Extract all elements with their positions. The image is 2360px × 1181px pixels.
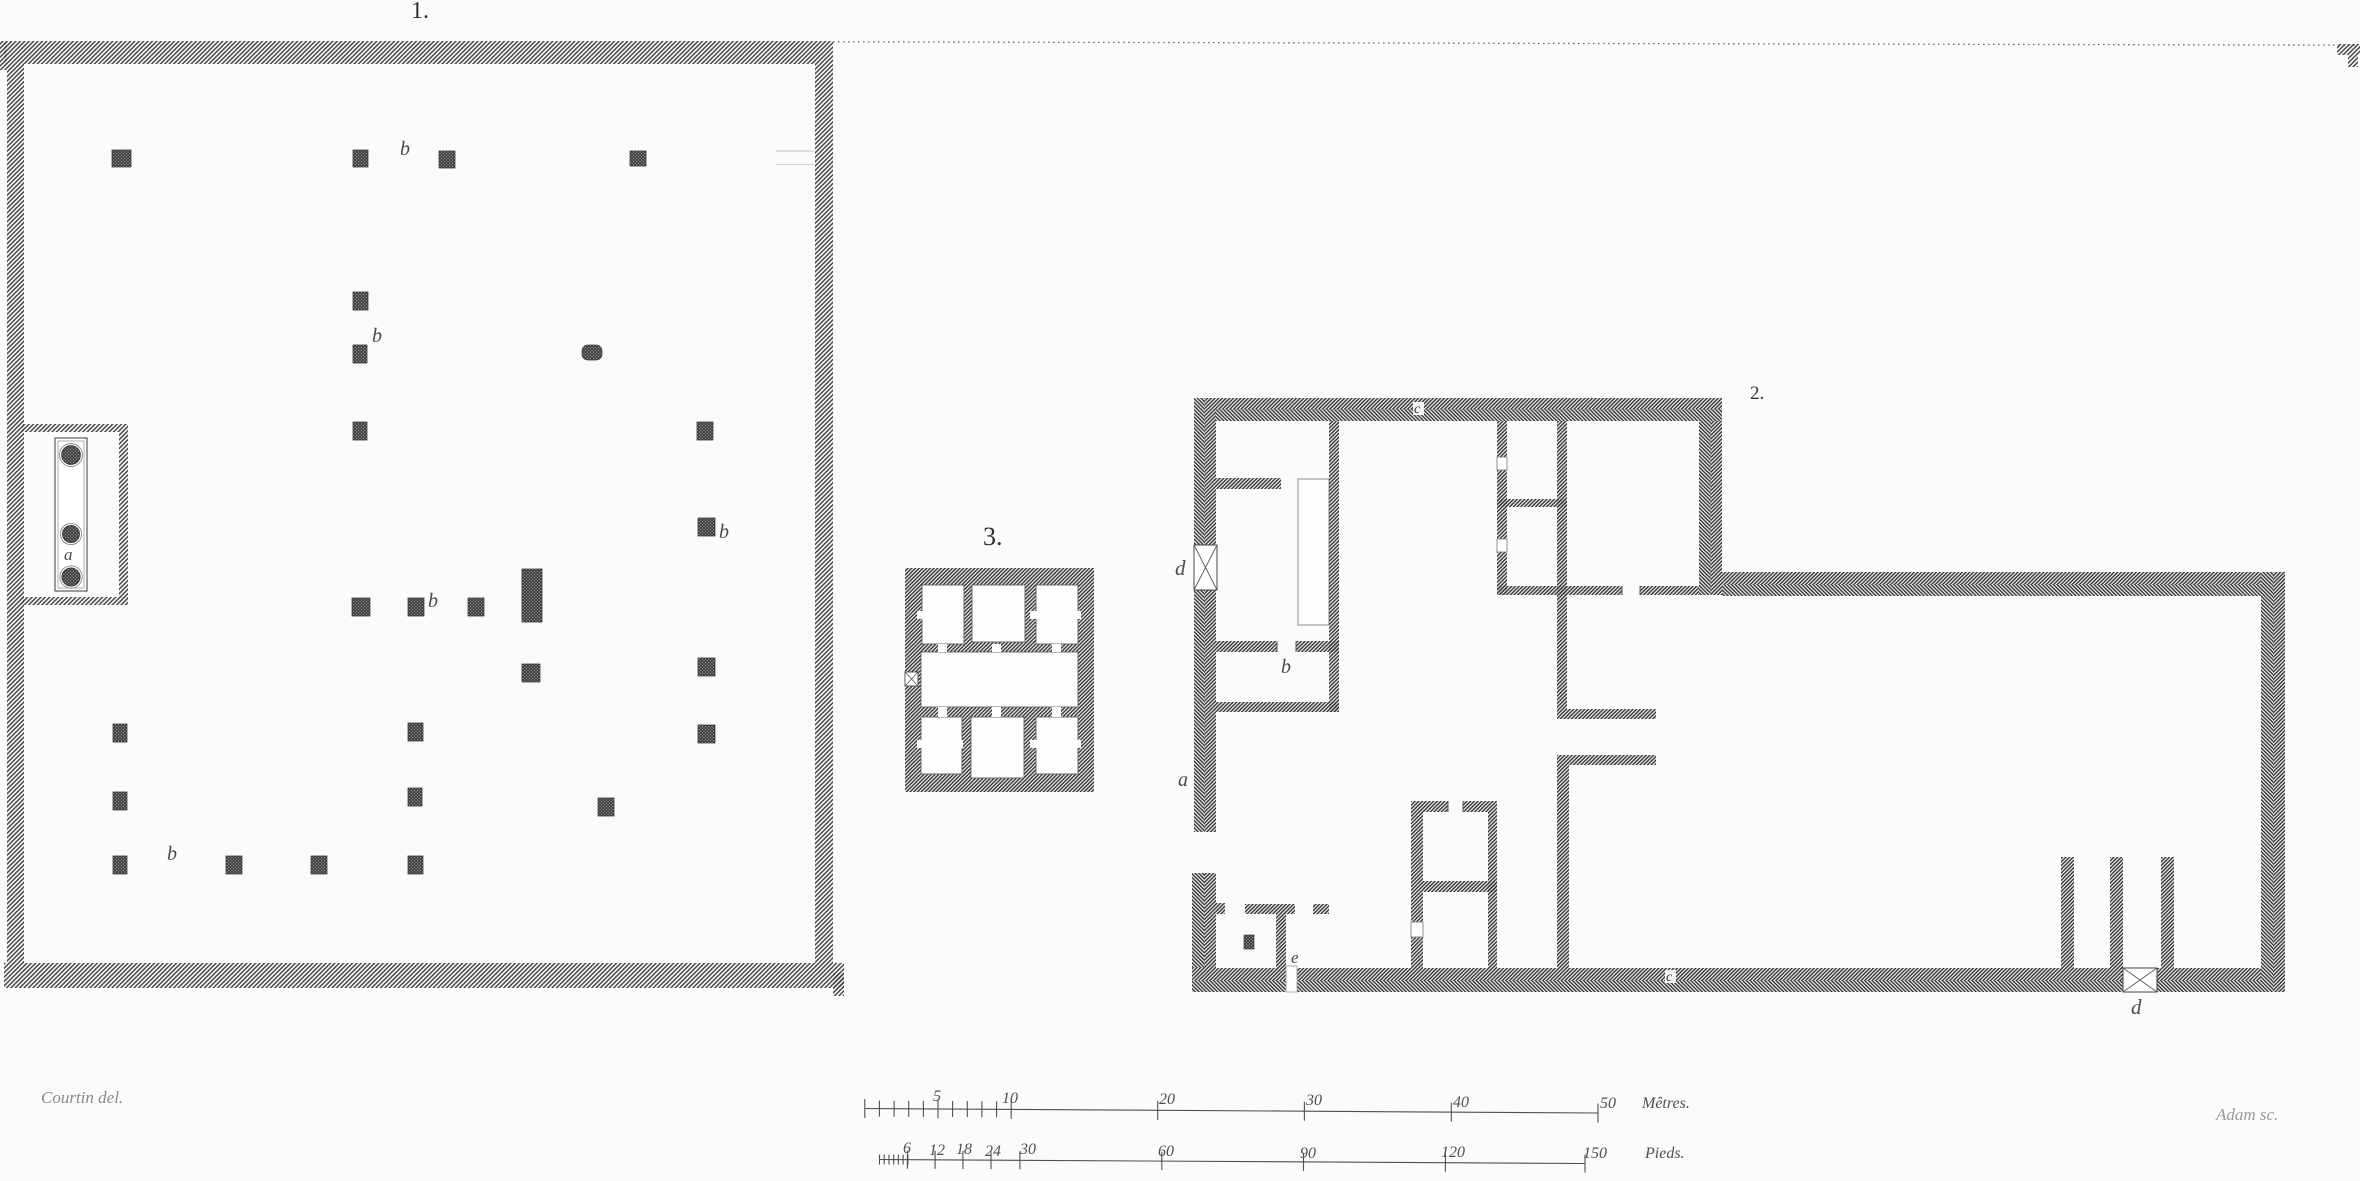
svg-text:60: 60: [1158, 1143, 1174, 1160]
svg-text:b: b: [167, 843, 177, 865]
svg-text:40: 40: [1453, 1094, 1469, 1111]
svg-text:Mêtres.: Mêtres.: [1641, 1095, 1690, 1112]
svg-text:e: e: [1291, 948, 1299, 967]
svg-text:a: a: [64, 545, 73, 564]
svg-text:12: 12: [929, 1142, 945, 1159]
svg-text:b: b: [400, 138, 410, 160]
svg-text:150: 150: [1583, 1145, 1607, 1162]
svg-text:b: b: [719, 521, 729, 543]
svg-text:2.: 2.: [1750, 383, 1764, 404]
svg-text:24: 24: [985, 1143, 1001, 1160]
svg-text:5: 5: [933, 1088, 941, 1105]
svg-text:120: 120: [1441, 1144, 1465, 1161]
svg-text:18: 18: [956, 1141, 972, 1158]
svg-text:20: 20: [1159, 1091, 1175, 1108]
svg-text:c: c: [1666, 970, 1673, 985]
svg-text:1.: 1.: [411, 0, 429, 24]
svg-text:3.: 3.: [983, 522, 1003, 551]
svg-text:30: 30: [1019, 1141, 1036, 1158]
svg-text:Adam sc.: Adam sc.: [2215, 1105, 2278, 1124]
svg-text:30: 30: [1305, 1092, 1322, 1109]
svg-text:50: 50: [1600, 1095, 1616, 1112]
svg-text:d: d: [1175, 556, 1186, 580]
svg-text:Courtin del.: Courtin del.: [41, 1088, 123, 1107]
svg-text:b: b: [1281, 656, 1291, 678]
svg-text:b: b: [428, 590, 438, 612]
svg-text:d: d: [2131, 995, 2142, 1019]
svg-text:6: 6: [903, 1140, 911, 1157]
svg-text:c: c: [1414, 402, 1421, 417]
svg-text:10: 10: [1002, 1090, 1018, 1107]
svg-text:90: 90: [1300, 1145, 1316, 1162]
svg-text:a: a: [1178, 769, 1188, 791]
svg-text:Pieds.: Pieds.: [1644, 1145, 1685, 1162]
svg-text:b: b: [372, 325, 382, 347]
